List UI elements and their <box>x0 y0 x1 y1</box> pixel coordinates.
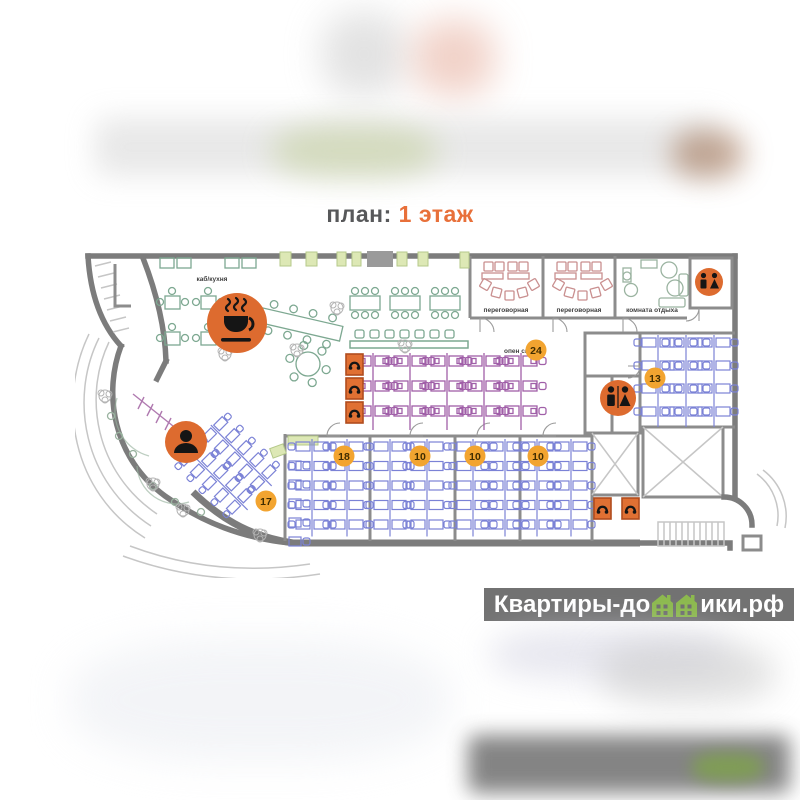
person-icon <box>165 421 207 463</box>
meeting-rooms-furniture <box>479 262 612 300</box>
badge-office-18: 18 <box>334 446 355 467</box>
room-label-meeting-2: переговорная <box>557 307 602 314</box>
badge-reception: 17 <box>256 491 277 512</box>
watermark: Квартиры-до ики.рф <box>484 588 794 621</box>
blurred-photo <box>672 130 744 178</box>
page: план: 1 этаж <box>0 0 800 800</box>
blurred-photo <box>322 12 406 96</box>
open-space-desks <box>348 353 546 430</box>
stairs-top-left <box>95 262 131 332</box>
blurred-photo <box>692 753 764 781</box>
svg-text:10: 10 <box>469 451 481 463</box>
room-label-kitchen: каб/кухня <box>197 275 228 283</box>
badge-office-10c: 10 <box>528 446 549 467</box>
title-prefix: план: <box>326 201 391 227</box>
watermark-text-2: ики.рф <box>700 591 784 619</box>
badge-open-space: 24 <box>526 340 547 361</box>
svg-text:13: 13 <box>649 373 661 385</box>
blurred-photo <box>70 640 450 760</box>
svg-text:10: 10 <box>414 451 426 463</box>
doors <box>327 308 699 436</box>
wc-icon-top <box>695 268 723 296</box>
wc-icon-center <box>600 380 636 416</box>
elevator-shafts <box>592 427 723 497</box>
blurred-photo <box>413 20 495 96</box>
blurred-photo <box>272 126 437 176</box>
watermark-text-1: Квартиры-до <box>494 591 650 619</box>
blurred-photo <box>600 642 775 704</box>
badge-office-10b: 10 <box>465 446 486 467</box>
lounge-furniture <box>623 260 688 307</box>
coffee-icon <box>207 293 267 353</box>
title-floor: 1 этаж <box>399 201 474 227</box>
room-label-meeting-1: переговорная <box>484 307 529 314</box>
svg-text:17: 17 <box>260 496 272 508</box>
houses-icon <box>651 591 699 618</box>
stairs-bottom-right <box>640 470 786 550</box>
floor-plan: каб/кухня переговорная переговорная комн… <box>75 246 790 578</box>
badge-office-10a: 10 <box>410 446 431 467</box>
svg-text:10: 10 <box>532 451 544 463</box>
svg-text:24: 24 <box>530 345 542 357</box>
page-title: план: 1 этаж <box>0 201 800 228</box>
badge-office-13: 13 <box>645 368 666 389</box>
room-label-lounge: комната отдыха <box>626 307 678 314</box>
svg-text:18: 18 <box>338 451 350 463</box>
